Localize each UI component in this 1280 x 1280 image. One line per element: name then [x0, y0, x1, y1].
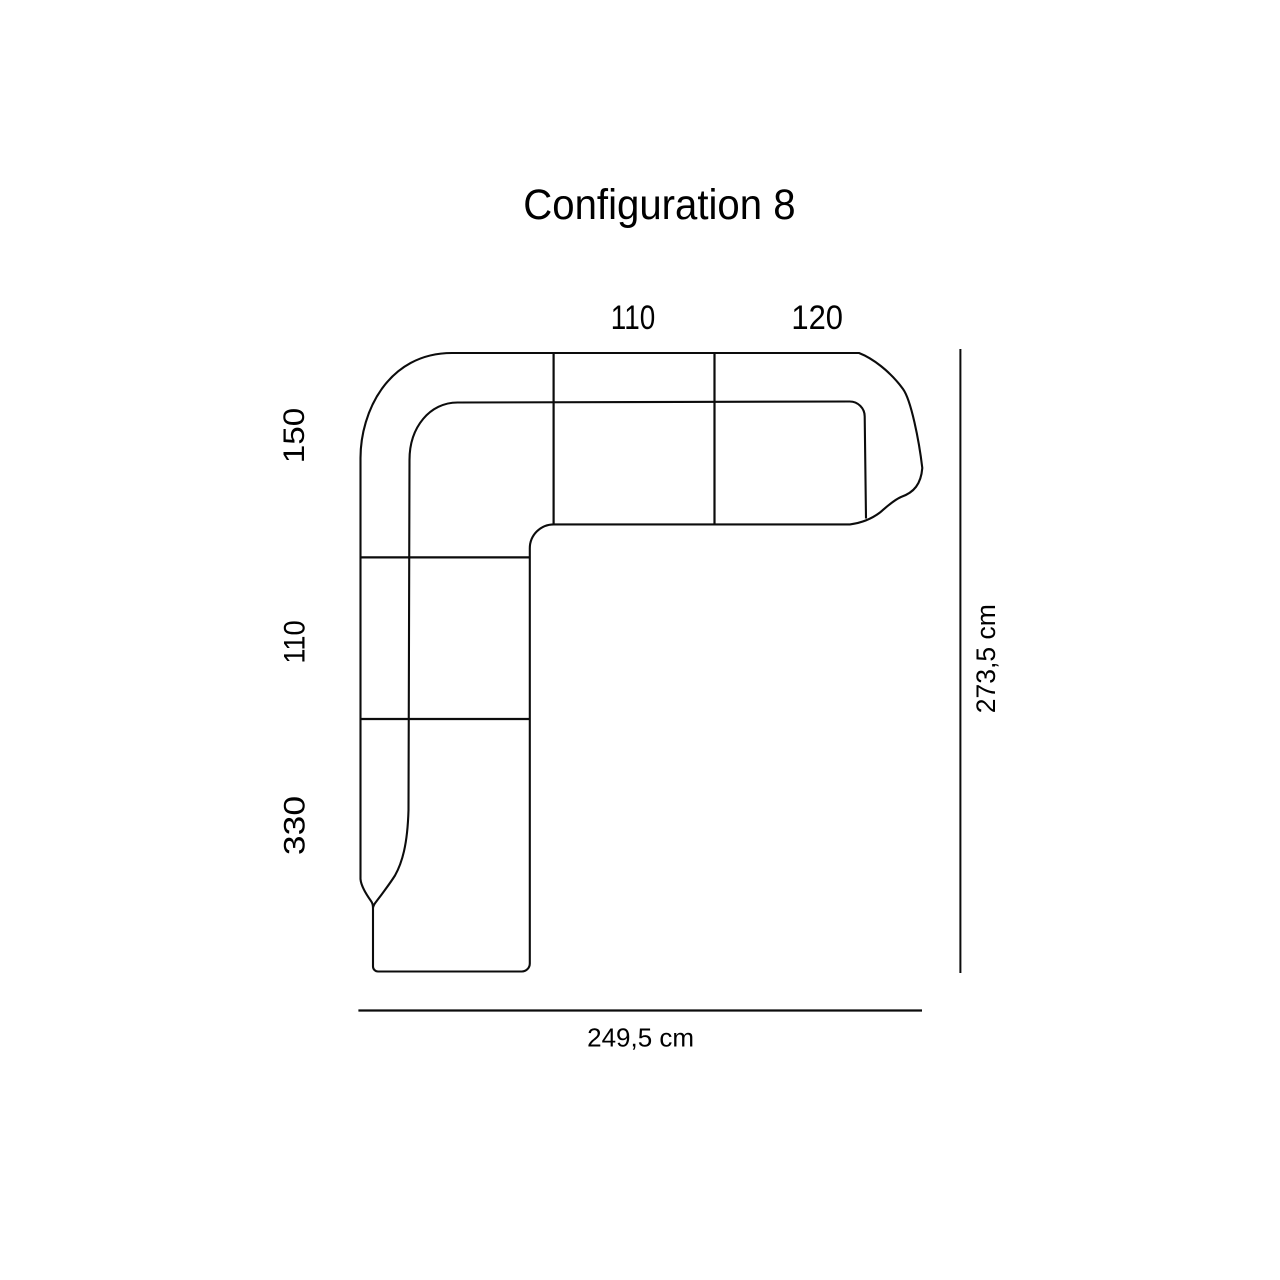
svg-text:110: 110 [278, 620, 312, 663]
svg-text:150: 150 [277, 408, 311, 463]
svg-text:330: 330 [277, 796, 311, 855]
svg-text:120: 120 [791, 299, 843, 337]
svg-text:Configuration 8: Configuration 8 [523, 181, 795, 228]
svg-text:110: 110 [611, 298, 655, 336]
svg-text:249,5 cm: 249,5 cm [587, 1023, 694, 1053]
svg-text:273,5 cm: 273,5 cm [971, 604, 1001, 713]
